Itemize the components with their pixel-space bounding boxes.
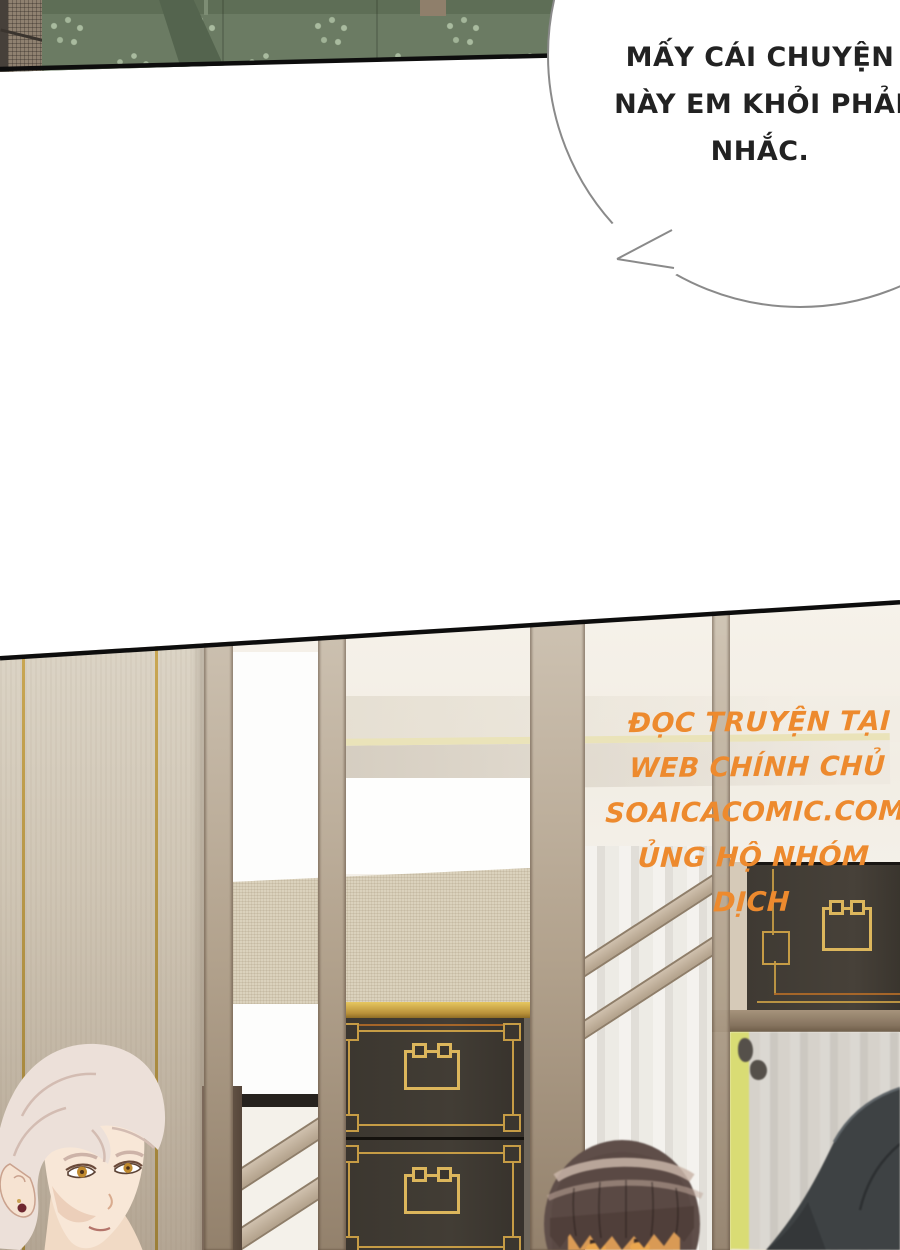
handle-notch bbox=[437, 1167, 452, 1182]
ornament-line bbox=[757, 1001, 900, 1003]
drawer-handle bbox=[404, 1050, 460, 1090]
ornament-line bbox=[774, 961, 776, 995]
speech-line-3: NHẮC. bbox=[560, 128, 900, 175]
drawer-divider bbox=[333, 1137, 530, 1140]
comic-page: MẤY CÁI CHUYỆN NÀY EM KHỎI PHẢI NHẮC. bbox=[0, 0, 900, 1250]
handle-notch bbox=[412, 1167, 427, 1182]
wood-shelf-bar bbox=[712, 1010, 900, 1032]
earring bbox=[18, 1204, 27, 1213]
wood-post bbox=[204, 596, 233, 1250]
ornament-corner bbox=[503, 1023, 521, 1041]
ornament-corner bbox=[503, 1236, 521, 1250]
ornament-corner bbox=[503, 1114, 521, 1132]
cabinet-accent-line bbox=[347, 1024, 515, 1026]
rattan-mesh-panel bbox=[230, 868, 530, 1004]
suit-character bbox=[748, 1082, 900, 1250]
watermark-line-3: SOAICACOMIC.COM bbox=[597, 789, 900, 837]
shelf-opening bbox=[233, 652, 318, 1100]
handle-notch bbox=[412, 1043, 427, 1058]
ornament-line bbox=[774, 993, 900, 995]
watermark-line-2: WEB CHÍNH CHỦ bbox=[599, 744, 900, 792]
watermark-line-1: ĐỌC TRUYỆN TẠI bbox=[601, 699, 900, 747]
ornament-corner bbox=[762, 931, 790, 965]
ornament-corner bbox=[503, 1145, 521, 1163]
plant-silhouette bbox=[738, 1038, 753, 1062]
earring-hook bbox=[17, 1199, 21, 1203]
drawer-handle bbox=[404, 1174, 460, 1214]
suit-shoulder bbox=[766, 1088, 900, 1250]
girl-character bbox=[542, 1136, 712, 1250]
speech-line-2: NÀY EM KHỎI PHẢI bbox=[560, 81, 900, 128]
handle-notch bbox=[437, 1043, 452, 1058]
translator-watermark: ĐỌC TRUYỆN TẠI WEB CHÍNH CHỦ SOAICACOMIC… bbox=[593, 699, 900, 927]
watermark-line-4: ỦNG HỘ NHÓM DỊCH bbox=[593, 834, 900, 927]
bottom-panel-border bbox=[0, 596, 900, 666]
cabinet-middle bbox=[333, 1018, 530, 1250]
man-character bbox=[0, 1036, 182, 1250]
speech-text: MẤY CÁI CHUYỆN NÀY EM KHỎI PHẢI NHẮC. bbox=[560, 34, 900, 175]
shelf-opening bbox=[346, 778, 530, 874]
plant-silhouette bbox=[750, 1060, 767, 1080]
speech-line-1: MẤY CÁI CHUYỆN bbox=[560, 34, 900, 81]
yellow-wall-stripe bbox=[730, 1032, 749, 1250]
wood-post bbox=[318, 596, 346, 1250]
